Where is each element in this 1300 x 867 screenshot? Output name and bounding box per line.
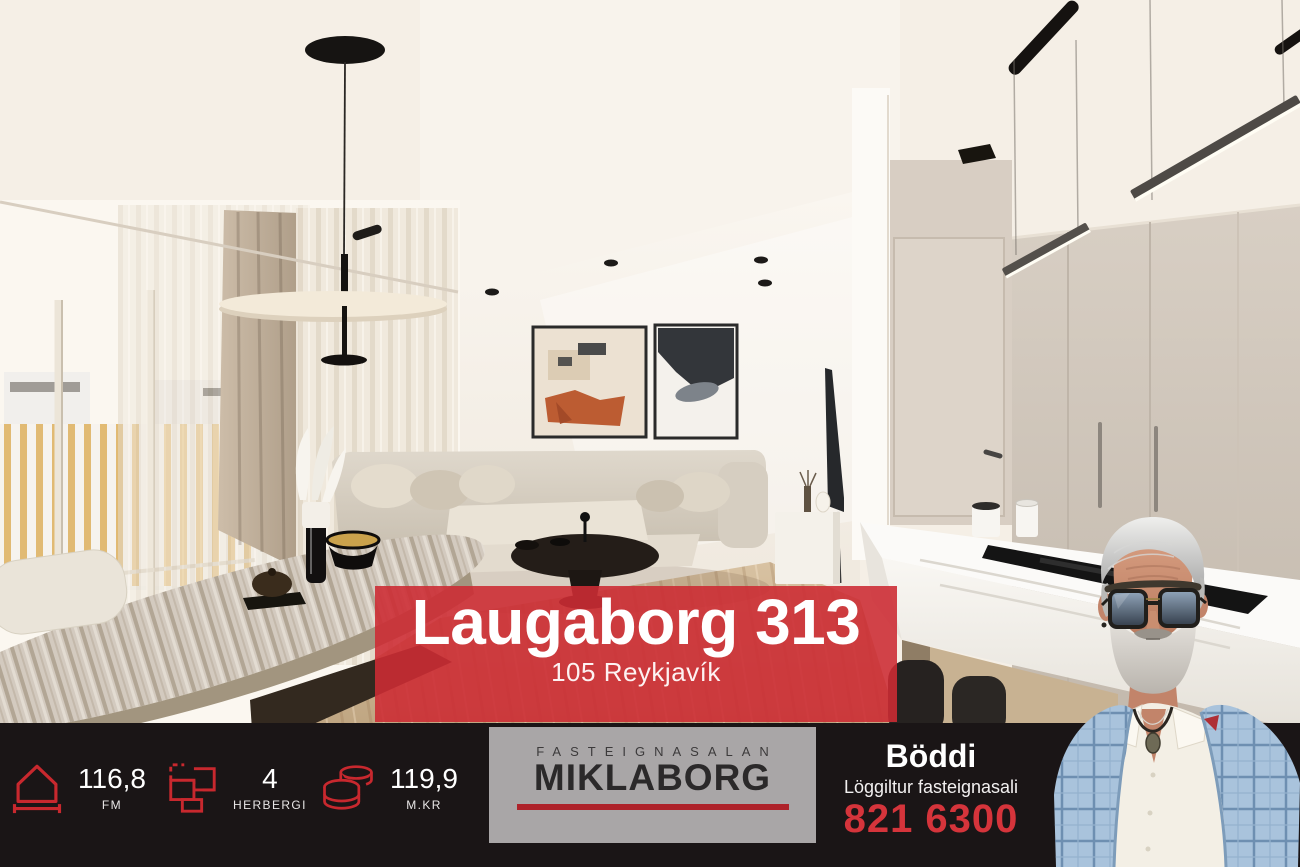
miklaborg-logo: FASTEIGNASALAN MIKLABORG <box>489 727 816 843</box>
address-banner: Laugaborg 313 105 Reykjavík <box>375 586 897 722</box>
stat-price: 119,9 M.KR <box>320 757 459 817</box>
area-value: 116,8 <box>78 763 146 795</box>
house-measure-icon <box>10 757 64 817</box>
logo-name: MIKLABORG <box>534 759 771 798</box>
floorplan-icon <box>164 757 220 817</box>
agent-phone: 821 6300 <box>826 799 1036 839</box>
artwork-right <box>655 325 737 438</box>
price-value: 119,9 <box>390 763 458 795</box>
rooms-value: 4 <box>262 763 278 795</box>
logo-underline <box>517 804 789 810</box>
wall-column <box>852 88 890 560</box>
door <box>894 238 1004 516</box>
property-city: 105 Reykjavík <box>551 657 721 688</box>
artwork-left <box>533 327 646 437</box>
area-label: FM <box>102 798 122 812</box>
real-estate-ad: Laugaborg 313 105 Reykjavík 116,8 FM <box>0 0 1300 867</box>
diffuser <box>804 486 811 512</box>
price-label: M.KR <box>406 798 442 812</box>
agent-photo <box>1054 513 1300 867</box>
stat-area: 116,8 FM <box>10 757 147 817</box>
rooms-label: HERBERGI <box>233 798 307 812</box>
agent-name: Böddi <box>826 740 1036 774</box>
pampas-vase <box>302 502 330 528</box>
agent-title: Löggiltur fasteignasali <box>826 777 1036 798</box>
coins-icon <box>320 757 376 817</box>
earring <box>1102 623 1107 628</box>
pendant <box>1146 733 1160 753</box>
property-address: Laugaborg 313 <box>412 590 861 655</box>
vase <box>816 492 830 512</box>
agent-info: Böddi Löggiltur fasteignasali 821 6300 <box>826 740 1036 839</box>
stat-rooms: 4 HERBERGI <box>164 757 307 817</box>
